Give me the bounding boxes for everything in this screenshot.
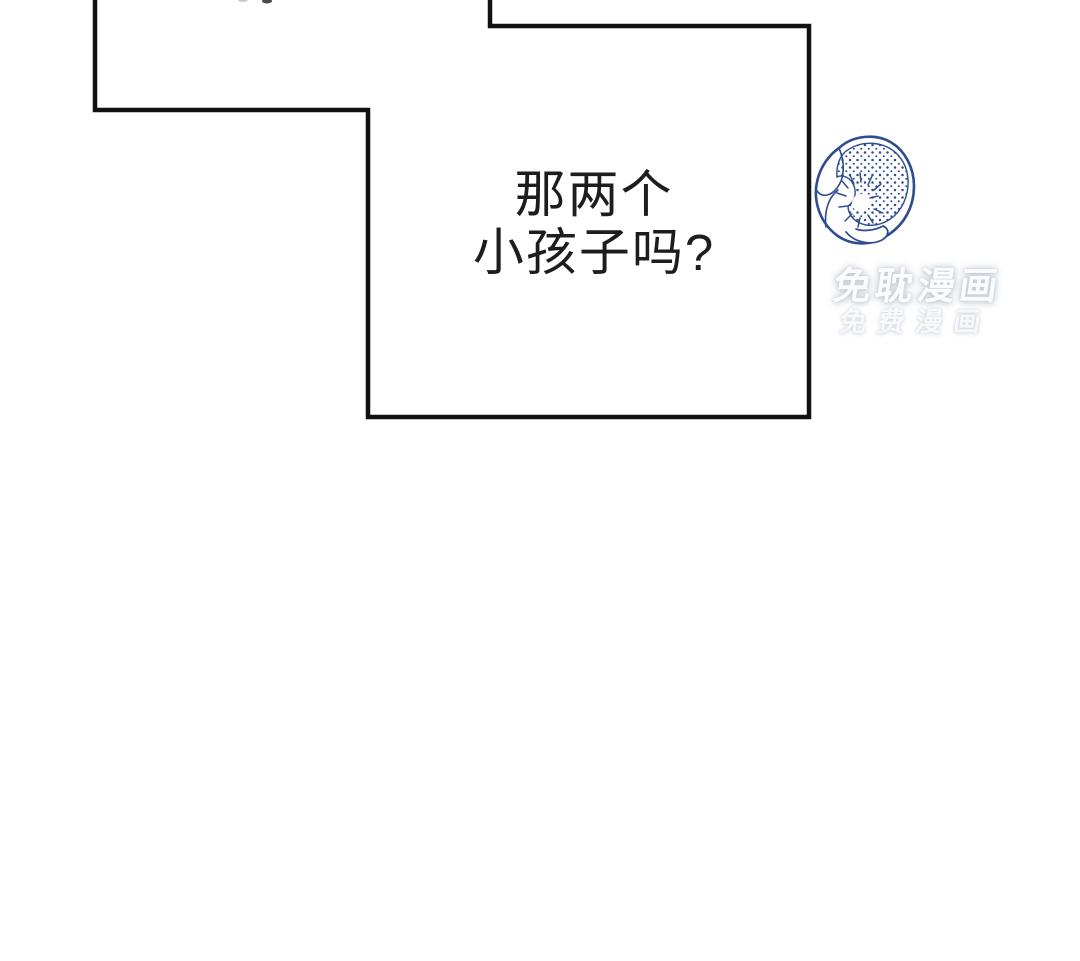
comic-page: 那两个 小孩子吗? 免耽漫画 免费漫画 [0, 0, 1080, 961]
dialogue-line-1: 那两个 [473, 166, 715, 224]
cropped-art-fragment-light [239, 0, 248, 2]
flower-center-highlight [852, 194, 870, 212]
flower-sketch-icon [803, 128, 922, 254]
dialogue-text: 那两个 小孩子吗? [473, 166, 715, 282]
watermark-secondary: 免费漫画 [837, 300, 994, 339]
cropped-art-fragment-dark [262, 0, 272, 4]
dialogue-line-2: 小孩子吗? [473, 224, 715, 282]
